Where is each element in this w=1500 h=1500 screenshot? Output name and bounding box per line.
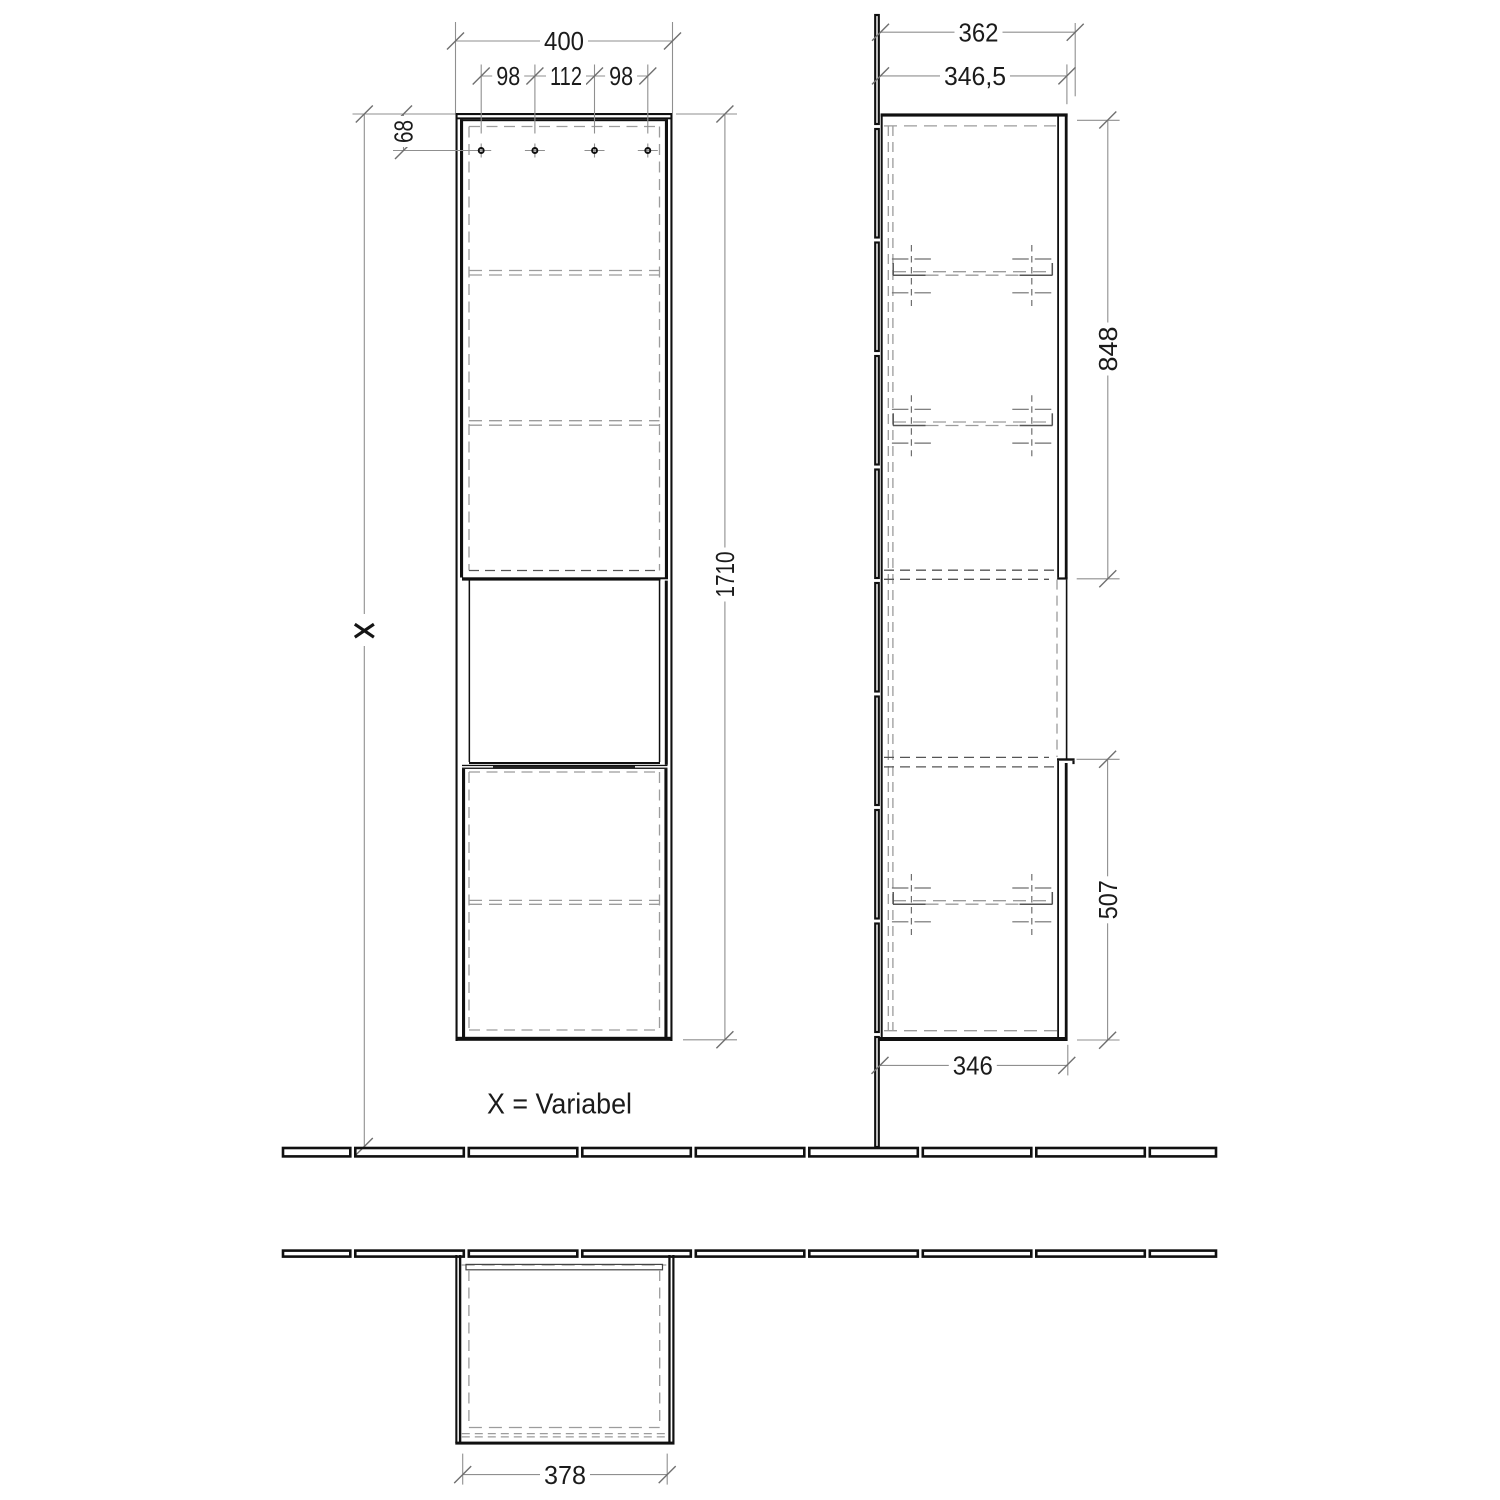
svg-text:848: 848 — [1093, 327, 1123, 372]
svg-text:112: 112 — [550, 61, 582, 91]
svg-text:1710: 1710 — [710, 552, 740, 598]
svg-text:346,5: 346,5 — [944, 61, 1006, 91]
svg-text:98: 98 — [609, 61, 633, 91]
svg-text:X = Variabel: X = Variabel — [487, 1089, 632, 1121]
svg-text:362: 362 — [959, 17, 999, 47]
svg-text:98: 98 — [496, 61, 520, 91]
svg-text:507: 507 — [1093, 880, 1123, 919]
svg-text:378: 378 — [544, 1460, 586, 1490]
svg-text:346: 346 — [953, 1051, 993, 1081]
svg-text:400: 400 — [544, 26, 584, 56]
svg-text:68: 68 — [389, 120, 419, 143]
